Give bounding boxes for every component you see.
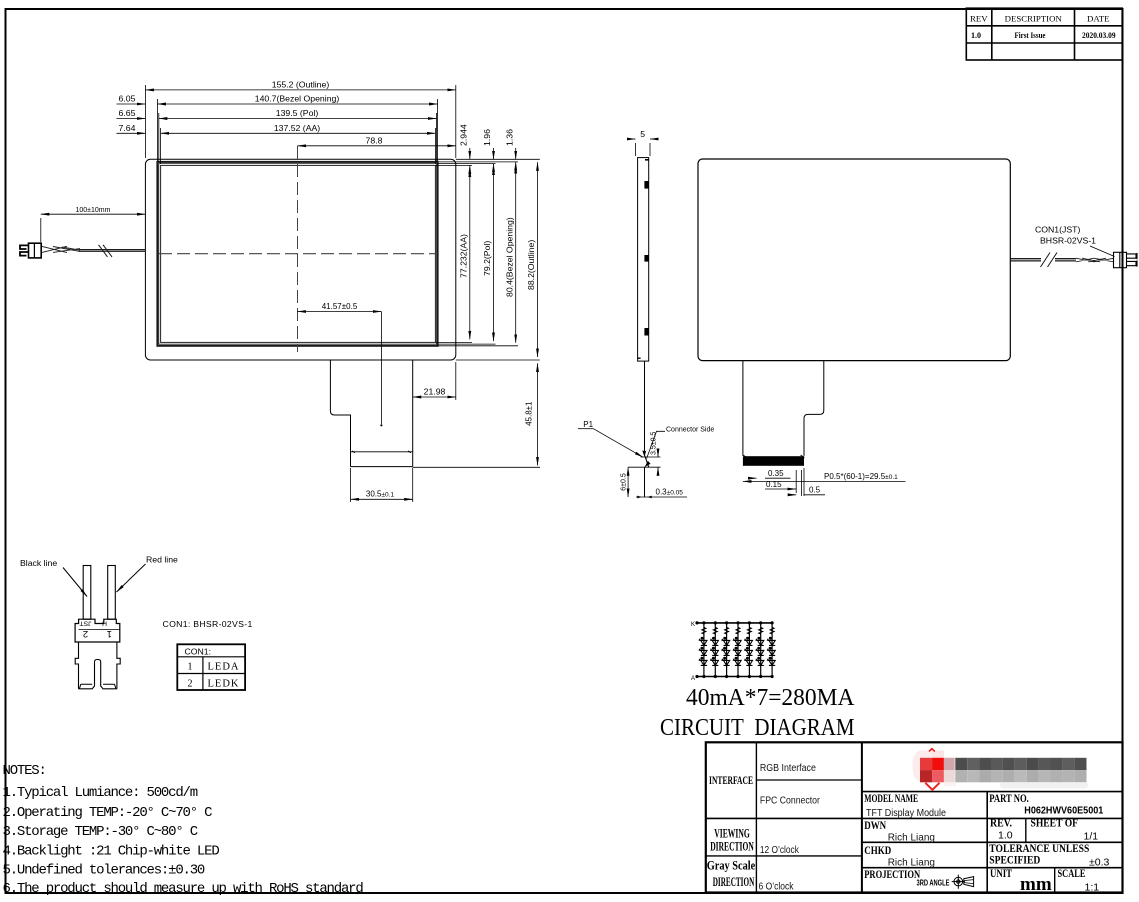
svg-text:CHKD: CHKD	[864, 843, 891, 857]
svg-text:3.Storage TEMP:-30° C~80° C: 3.Storage TEMP:-30° C~80° C	[3, 824, 198, 840]
svg-text:30.5±0.1: 30.5±0.1	[366, 490, 395, 499]
svg-text:DWN: DWN	[864, 818, 886, 832]
svg-text:mm: mm	[1020, 874, 1052, 895]
svg-text:1: 1	[188, 662, 193, 673]
svg-text:6 O’clock: 6 O’clock	[759, 882, 795, 893]
svg-text:140.7(Bezel Opening): 140.7(Bezel Opening)	[255, 94, 340, 104]
svg-text:CIRCUIT DIAGRAM: CIRCUIT DIAGRAM	[660, 714, 855, 741]
svg-text:1.36: 1.36	[504, 129, 514, 146]
svg-text:Black line: Black line	[20, 558, 57, 568]
svg-text:5.Undefined tolerances:±0.30: 5.Undefined tolerances:±0.30	[3, 863, 205, 879]
svg-text:PART NO.: PART NO.	[989, 791, 1029, 805]
svg-text:0.35: 0.35	[768, 469, 784, 478]
svg-text:SHEET OF: SHEET OF	[1031, 816, 1079, 830]
svg-text:1.96: 1.96	[482, 129, 492, 146]
svg-text:139.5 (Pol): 139.5 (Pol)	[276, 108, 319, 118]
svg-text:12 O’clock: 12 O’clock	[760, 845, 800, 856]
svg-text:Rich Liang: Rich Liang	[888, 832, 935, 843]
svg-text:0.5: 0.5	[809, 486, 821, 495]
svg-text:REV: REV	[970, 13, 988, 23]
svg-text:First Issue: First Issue	[1015, 31, 1046, 40]
svg-text:K: K	[691, 622, 695, 628]
svg-text:MODEL NAME: MODEL NAME	[864, 791, 918, 805]
svg-text:SPECIFIED: SPECIFIED	[989, 852, 1040, 866]
svg-text:P1: P1	[583, 420, 593, 429]
svg-text:77.232(AA): 77.232(AA)	[459, 234, 469, 278]
svg-text:88.2(Outline): 88.2(Outline)	[526, 240, 536, 290]
svg-text:REV.: REV.	[990, 816, 1012, 830]
svg-text:Connector Side: Connector Side	[666, 426, 714, 433]
svg-text:4.Backlight :21 Chip-white LED: 4.Backlight :21 Chip-white LED	[3, 843, 220, 859]
svg-text:6.The product should measure u: 6.The product should measure up with RoH…	[3, 881, 364, 897]
svg-text:SCALE: SCALE	[1058, 866, 1086, 880]
svg-text:CON1(JST): CON1(JST)	[1035, 225, 1080, 235]
svg-text:LEDA: LEDA	[208, 662, 240, 673]
svg-text:137.52 (AA): 137.52 (AA)	[274, 123, 320, 133]
svg-text:FPC Connector: FPC Connector	[760, 796, 821, 807]
svg-text:JST: JST	[79, 620, 91, 627]
svg-text:1.0: 1.0	[998, 829, 1013, 841]
svg-text:41.57±0.5: 41.57±0.5	[322, 302, 358, 311]
svg-text:155.2 (Outline): 155.2 (Outline)	[272, 80, 330, 90]
svg-text:3.5±0.5: 3.5±0.5	[650, 432, 657, 455]
svg-text:RGB Interface: RGB Interface	[760, 763, 816, 774]
svg-text:BHSR-02VS-1: BHSR-02VS-1	[1040, 236, 1096, 246]
svg-text:6.65: 6.65	[119, 108, 136, 118]
svg-text:80.4(Bezel Opening): 80.4(Bezel Opening)	[504, 217, 514, 297]
svg-text:H: H	[102, 620, 107, 627]
svg-text:2020.03.09: 2020.03.09	[1082, 31, 1116, 40]
svg-text:3RD ANGLE: 3RD ANGLE	[917, 878, 950, 888]
svg-text:A: A	[691, 676, 695, 682]
svg-text:1:1: 1:1	[1085, 882, 1100, 894]
svg-text:78.8: 78.8	[366, 135, 383, 145]
svg-text:PROJECTION: PROJECTION	[864, 867, 920, 881]
svg-text:2: 2	[188, 678, 193, 689]
svg-text:CON1:: CON1:	[185, 647, 212, 657]
svg-text:100±10mm: 100±10mm	[76, 207, 111, 214]
svg-text:NOTES:: NOTES:	[3, 763, 46, 779]
svg-text:LEDK: LEDK	[208, 678, 240, 689]
svg-text:6±0.5: 6±0.5	[620, 473, 627, 491]
svg-text:INTERFACE: INTERFACE	[709, 773, 753, 787]
svg-text:21.98: 21.98	[424, 386, 446, 396]
svg-text:0.3±0.05: 0.3±0.05	[656, 487, 684, 496]
svg-text:5: 5	[640, 129, 645, 139]
svg-text:Gray Scale: Gray Scale	[707, 858, 756, 873]
svg-text:2.944: 2.944	[459, 124, 469, 146]
svg-text:P0.5*(60-1)=29.5±0.1: P0.5*(60-1)=29.5±0.1	[824, 472, 898, 481]
svg-text:7.64: 7.64	[119, 123, 136, 133]
svg-text:79.2(Pol): 79.2(Pol)	[482, 241, 492, 276]
svg-text:Red line: Red line	[146, 555, 178, 565]
svg-text:0.15: 0.15	[766, 480, 782, 489]
svg-text:±0.3: ±0.3	[1089, 857, 1110, 869]
svg-text:6.05: 6.05	[119, 94, 136, 104]
svg-text:CON1: BHSR-02VS-1: CON1: BHSR-02VS-1	[163, 619, 253, 629]
svg-text:40mA*7=280MA: 40mA*7=280MA	[686, 684, 855, 711]
svg-text:DATE: DATE	[1087, 13, 1109, 23]
svg-text:DIRECTION: DIRECTION	[710, 838, 754, 853]
svg-text:1.Typical Lumiance: 500cd/m: 1.Typical Lumiance: 500cd/m	[3, 785, 198, 801]
svg-text:45.8±1: 45.8±1	[525, 401, 534, 426]
svg-text:2.Operating TEMP:-20° C~70° C: 2.Operating TEMP:-20° C~70° C	[3, 805, 213, 821]
svg-text:1.0: 1.0	[971, 31, 981, 40]
svg-text:UNIT: UNIT	[990, 866, 1012, 880]
svg-text:DIRECTION: DIRECTION	[713, 874, 755, 889]
svg-text:DESCRIPTION: DESCRIPTION	[1005, 13, 1063, 23]
